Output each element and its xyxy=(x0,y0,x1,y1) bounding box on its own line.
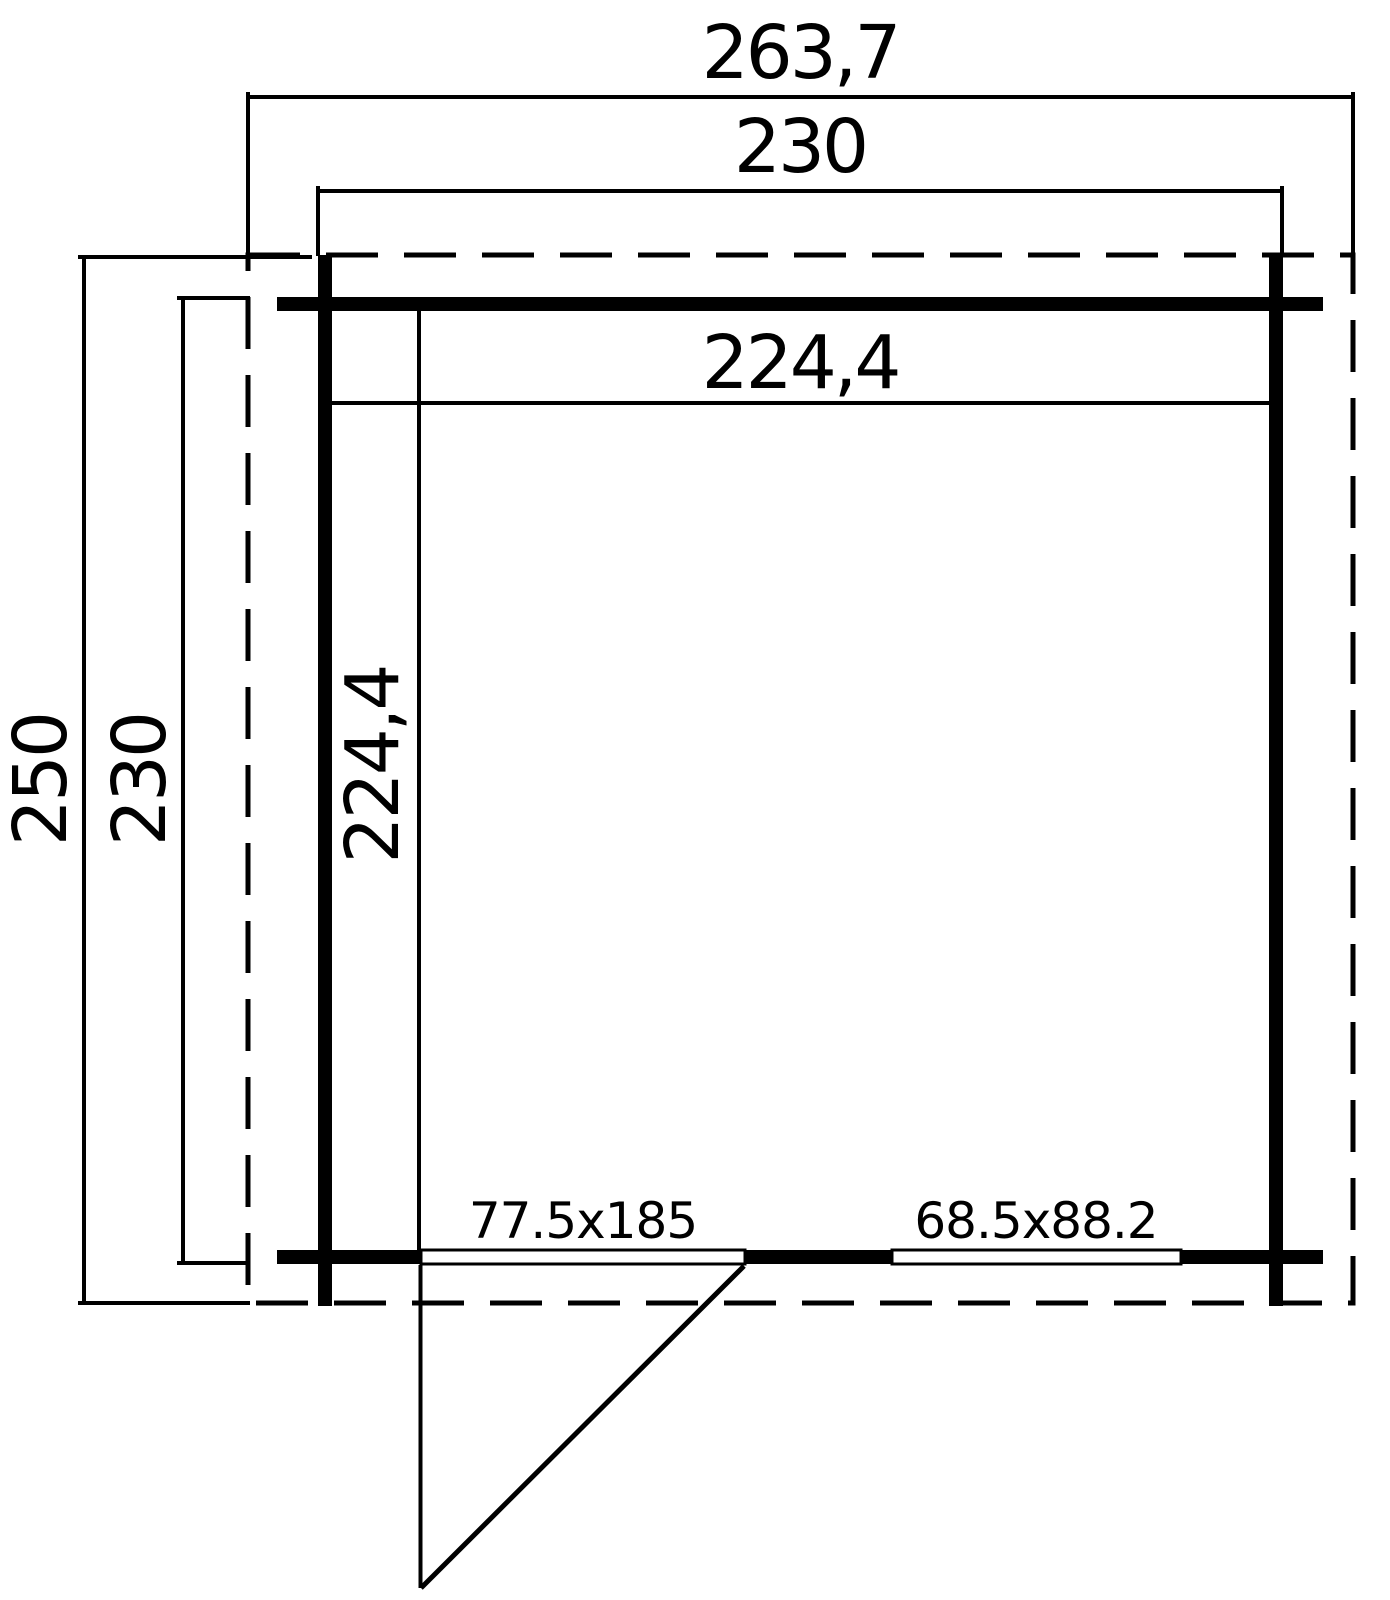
wall-bottom-left-segment xyxy=(277,1250,421,1264)
building-width-label: 230 xyxy=(734,104,866,190)
wall-right xyxy=(1269,255,1283,1306)
interior-width-label: 224,4 xyxy=(702,320,899,406)
roof-depth-label: 250 xyxy=(0,714,84,846)
roof-width-label: 263,7 xyxy=(702,10,899,96)
floor-plan-drawing: 263,7 230 224,4 250 230 224,4 77.5x185 xyxy=(0,0,1390,1600)
door-opening xyxy=(421,1250,745,1264)
window-size-label: 68.5x88.2 xyxy=(914,1192,1157,1250)
wall-bottom-middle-segment xyxy=(745,1250,892,1264)
door-size-label: 77.5x185 xyxy=(469,1192,697,1250)
wall-bottom-right-segment xyxy=(1180,1250,1323,1264)
wall-top xyxy=(277,297,1323,311)
floor-plan-canvas: 263,7 230 224,4 250 230 224,4 77.5x185 xyxy=(0,0,1390,1600)
door-swing-line xyxy=(421,1266,744,1588)
interior-depth-label: 224,4 xyxy=(330,667,416,864)
building-depth-label: 230 xyxy=(97,714,183,846)
window-opening xyxy=(892,1250,1181,1264)
wall-left xyxy=(318,255,332,1306)
